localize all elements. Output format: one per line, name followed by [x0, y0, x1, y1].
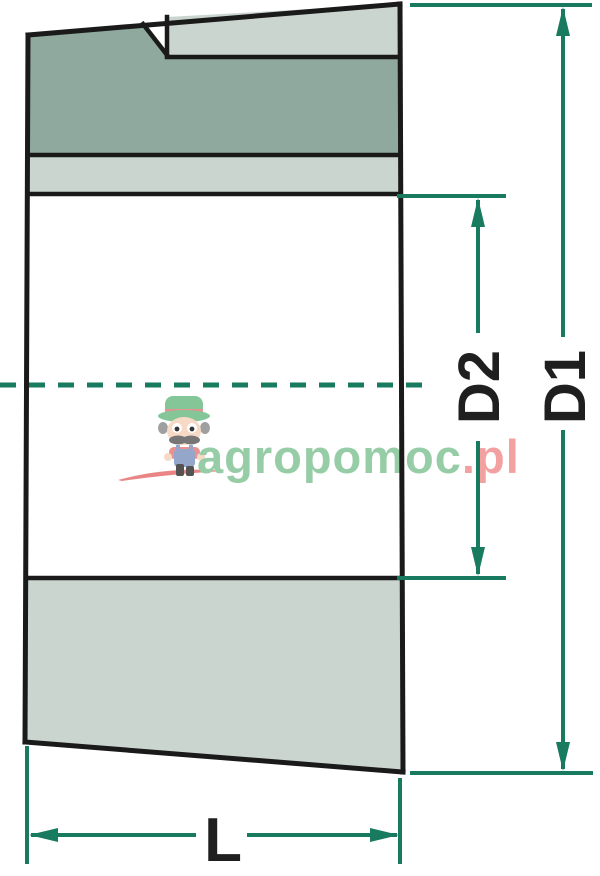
l-arrow-right	[370, 828, 399, 842]
upper-strip-fill	[28, 155, 400, 194]
watermark-text-green: agropomoc	[197, 430, 462, 483]
d2-label: D2	[447, 350, 512, 424]
bushing-cross-section-diagram: agropomoc.pl D2 D1	[0, 0, 600, 876]
watermark-brand-text: agropomoc.pl	[197, 430, 520, 483]
d1-label: D1	[533, 350, 598, 424]
l-label: L	[204, 806, 242, 875]
d1-arrow-down	[556, 742, 570, 771]
watermark-text-pink: .pl	[462, 430, 520, 483]
section-fills	[25, 4, 403, 772]
l-arrow-left	[29, 828, 58, 842]
d2-arrow-down	[471, 547, 485, 576]
bottom-section-fill	[25, 579, 403, 772]
right-face-edge	[400, 4, 403, 772]
left-face-edge	[25, 35, 28, 742]
d1-arrow-up	[556, 7, 570, 36]
d2-arrow-up	[471, 198, 485, 227]
technical-drawing-canvas: agropomoc.pl D2 D1	[0, 0, 600, 876]
